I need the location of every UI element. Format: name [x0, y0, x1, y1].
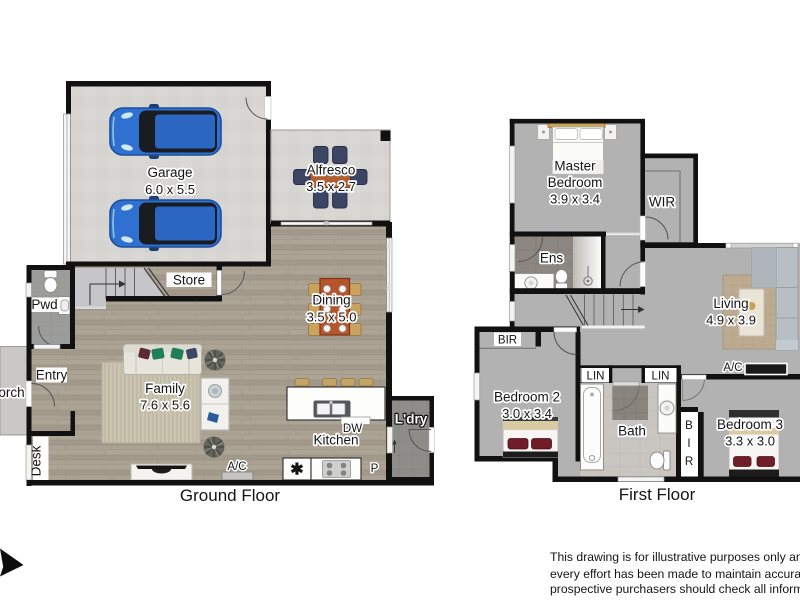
svg-text:A/C: A/C	[227, 461, 246, 473]
svg-text:First Floor: First Floor	[619, 485, 696, 504]
svg-text:BIR: BIR	[498, 335, 517, 347]
svg-text:Entry: Entry	[36, 368, 68, 383]
svg-text:6.0 x 5.5: 6.0 x 5.5	[145, 182, 195, 197]
svg-text:3.5 x 2.7: 3.5 x 2.7	[306, 179, 356, 194]
svg-text:Kitchen: Kitchen	[313, 433, 358, 448]
svg-text:Store: Store	[173, 273, 205, 288]
svg-text:Master: Master	[554, 159, 596, 174]
svg-text:4.9 x 3.9: 4.9 x 3.9	[706, 313, 756, 328]
svg-text:✱: ✱	[290, 462, 303, 479]
svg-text:Bedroom 3: Bedroom 3	[717, 417, 783, 432]
svg-text:LIN: LIN	[652, 371, 670, 383]
svg-text:A/C: A/C	[723, 362, 742, 374]
svg-text:Living: Living	[713, 296, 748, 311]
svg-text:3.0 x 3.4: 3.0 x 3.4	[502, 406, 552, 421]
svg-text:every effort has been made to: every effort has been made to maintain a…	[550, 567, 800, 581]
svg-text:WIR: WIR	[649, 195, 675, 210]
svg-text:Garage: Garage	[147, 165, 192, 180]
svg-text:Ens: Ens	[540, 251, 564, 266]
svg-text:L'dry: L'dry	[395, 412, 428, 427]
svg-text:Dining: Dining	[312, 293, 350, 308]
svg-text:I: I	[687, 438, 690, 450]
svg-text:3.9 x 3.4: 3.9 x 3.4	[550, 192, 600, 207]
svg-text:Family: Family	[145, 381, 185, 396]
svg-text:B: B	[685, 420, 693, 432]
svg-text:Bath: Bath	[618, 424, 646, 439]
svg-text:P: P	[371, 463, 379, 475]
svg-text:This drawing is for illustrati: This drawing is for illustrative purpose…	[550, 550, 800, 564]
svg-text:LIN: LIN	[587, 371, 605, 383]
svg-text:Bedroom: Bedroom	[548, 175, 603, 190]
svg-text:7.6 x 5.6: 7.6 x 5.6	[140, 398, 190, 413]
svg-text:Porch: Porch	[0, 385, 25, 400]
svg-text:3.3 x 3.0: 3.3 x 3.0	[725, 434, 775, 449]
svg-text:prospective purchasers should: prospective purchasers should check all …	[550, 582, 800, 596]
svg-text:3.5 x 5.0: 3.5 x 5.0	[307, 310, 357, 325]
svg-text:Ground Floor: Ground Floor	[180, 486, 280, 505]
svg-text:Bedroom 2: Bedroom 2	[494, 390, 560, 405]
svg-text:R: R	[685, 456, 693, 468]
svg-text:Alfresco: Alfresco	[307, 163, 356, 178]
svg-text:Pwd: Pwd	[31, 297, 57, 312]
